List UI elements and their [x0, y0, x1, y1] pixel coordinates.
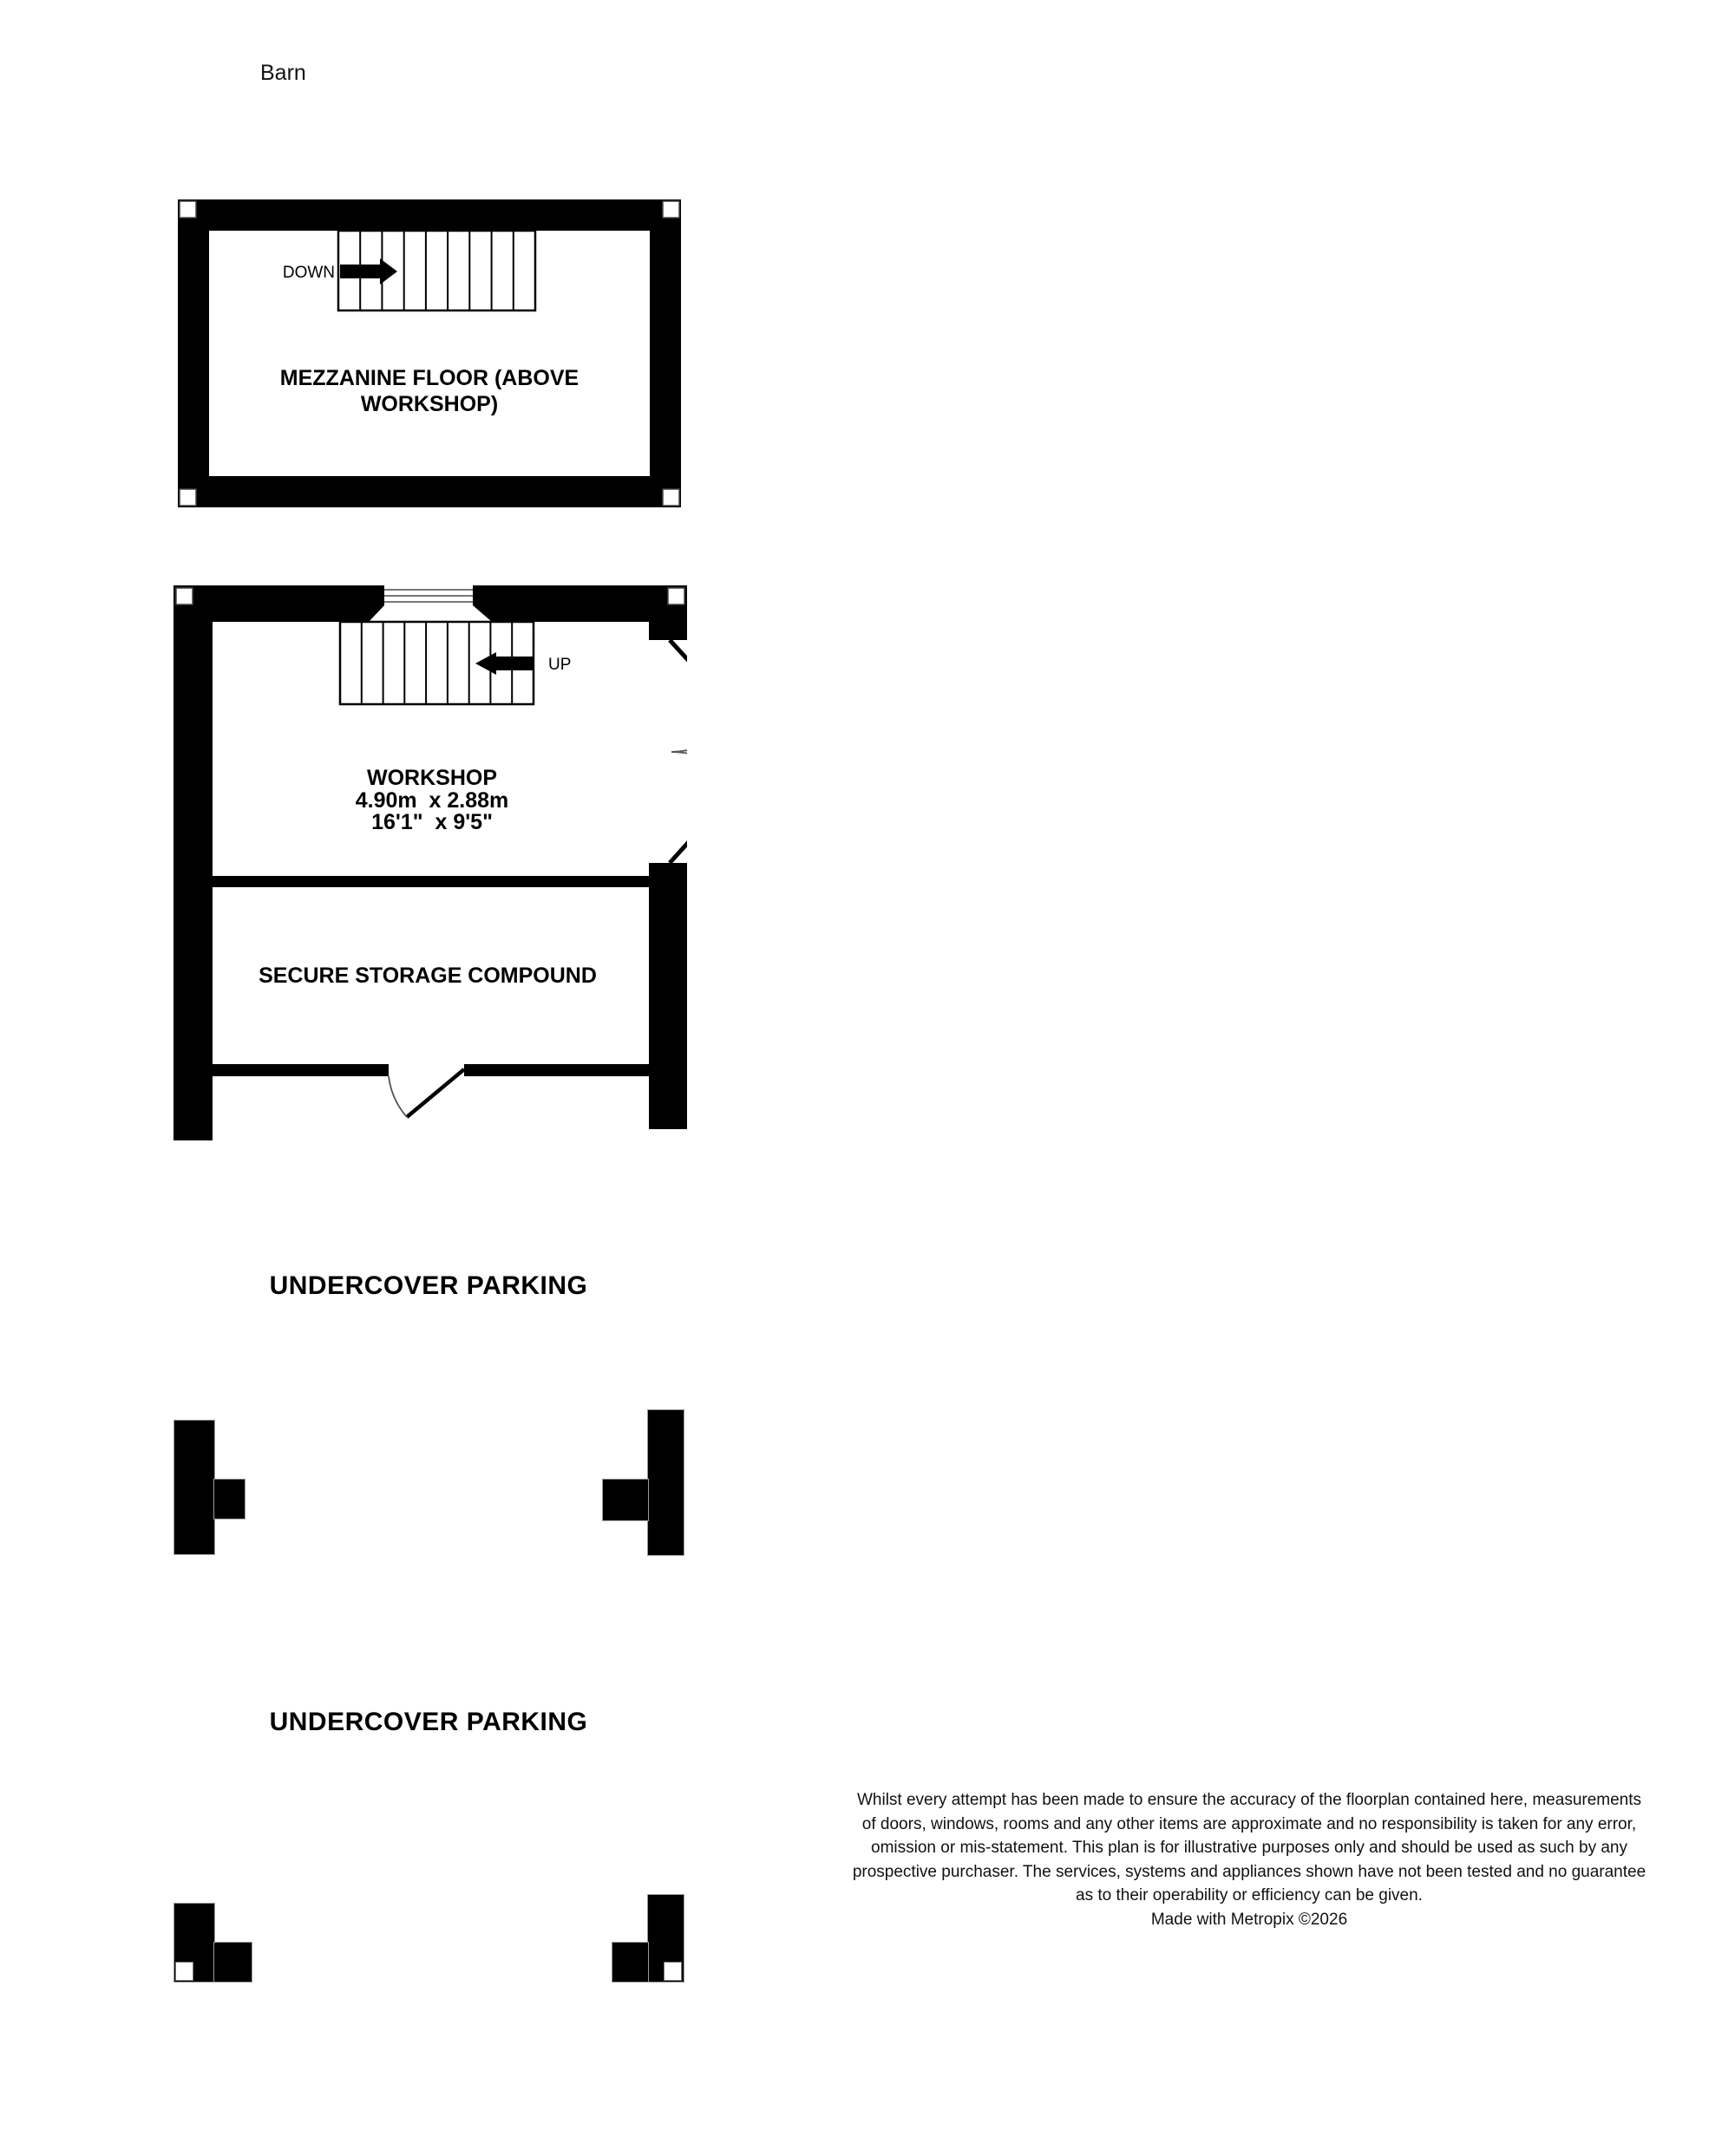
door-swing-arc: [671, 722, 687, 752]
mezzanine-wall-bottom: [178, 476, 681, 507]
mezzanine-room-label-line2: WORKSHOP): [361, 392, 498, 416]
corner-mark: [663, 201, 679, 218]
workshop-dims-imperial: 16'1" x 9'5": [371, 810, 493, 834]
corner-mark: [175, 1962, 193, 1981]
property-title: Barn: [260, 61, 306, 86]
compound-wall-bottom-right: [464, 1064, 649, 1076]
mezzanine-wall-right: [650, 199, 681, 507]
corner-mark: [668, 588, 684, 604]
door-leaf: [407, 1069, 464, 1117]
door-swing-arc: [389, 1076, 407, 1117]
corner-mark: [180, 201, 196, 218]
door-leaf: [670, 781, 687, 863]
stair-direction-label: DOWN: [283, 264, 335, 282]
parking-area2-label: UNDERCOVER PARKING: [220, 1708, 637, 1737]
door-swing-arc: [671, 752, 687, 781]
ground-floorplan: UP WORKSHOP 4.90m x 2.88m 16'1" x 9'5" S…: [173, 585, 687, 1140]
door-leaf: [670, 640, 687, 722]
corner-mark: [663, 489, 679, 506]
floorplan-page: Barn DOWN MEZZANINE FLOOR (ABOVE WORKSHO…: [0, 0, 1735, 2156]
corner-mark: [176, 588, 193, 604]
parking1-right-wall: [648, 1410, 684, 1555]
parking2-left-wall-stub: [214, 1943, 252, 1982]
storage-name: SECURE STORAGE COMPOUND: [259, 964, 597, 988]
up-arrow-shaft: [496, 657, 534, 670]
compound-wall-right: [649, 863, 687, 1129]
compound-wall-bottom-left: [213, 1064, 389, 1076]
stair-opening-flare: [369, 605, 492, 622]
parking1-left-wall: [174, 1421, 214, 1554]
mezzanine-wall-left: [178, 199, 209, 507]
mezzanine-wall-top: [178, 199, 681, 231]
parking1-left-wall-stub: [214, 1480, 245, 1519]
mezzanine-floorplan: DOWN MEZZANINE FLOOR (ABOVE WORKSHOP): [178, 199, 681, 507]
parking2-right-wall-stub: [612, 1943, 648, 1982]
parking-area1-label: UNDERCOVER PARKING: [220, 1271, 637, 1301]
parking1-right-wall-stub: [603, 1480, 648, 1520]
workshop-name: WORKSHOP: [367, 766, 497, 790]
mezzanine-room-label-line1: MEZZANINE FLOOR (ABOVE: [280, 366, 579, 390]
disclaimer-text: Whilst every attempt has been made to en…: [815, 1788, 1683, 1931]
corner-mark: [664, 1962, 682, 1981]
corner-mark: [180, 489, 196, 506]
divider-wall: [213, 876, 649, 887]
workshop-dims-metric: 4.90m x 2.88m: [356, 788, 509, 813]
stair-direction-label: UP: [548, 656, 571, 674]
down-arrow-shaft: [340, 265, 380, 278]
workshop-wall-left: [173, 585, 213, 1140]
